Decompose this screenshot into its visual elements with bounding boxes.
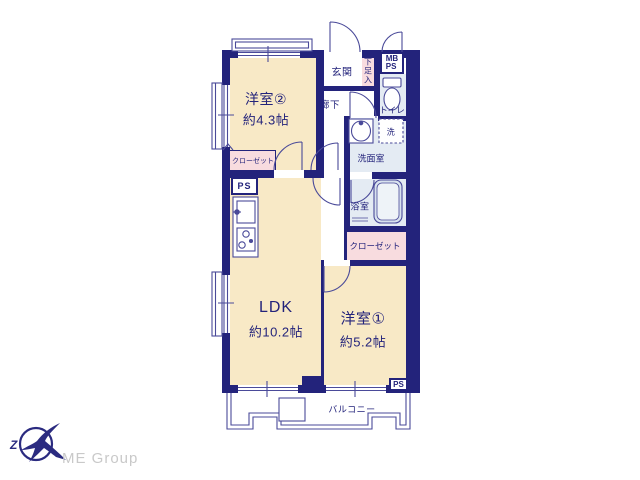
window-sill-left-lower <box>212 272 222 336</box>
room1-size: 約5.2帖 <box>340 332 387 351</box>
balcony-outline <box>227 393 410 429</box>
closet-room1-label: クローゼット <box>349 240 400 252</box>
toilet-label: トイレ <box>379 104 405 116</box>
logo-z-mark: Z <box>10 438 17 452</box>
ldk-name: LDK <box>259 299 293 317</box>
room1-name: 洋室① <box>341 308 386 329</box>
washroom-label: 洗面室 <box>357 152 384 165</box>
window-gap-bottom-room1 <box>326 385 386 393</box>
door-swing-washroom <box>350 92 376 118</box>
window-gap-bottom-ldk <box>238 385 298 393</box>
wall-segment <box>302 376 321 385</box>
window-gap-left-lower <box>222 275 230 333</box>
balcony-label: バルコニー <box>328 403 375 416</box>
ps-left-label: PS <box>237 181 251 191</box>
wall-segment <box>406 50 420 393</box>
window-gap-left-upper <box>222 85 230 147</box>
room2-name: 洋室② <box>245 89 287 109</box>
washer-label: 洗 <box>387 127 396 138</box>
brand-name: ME Group <box>62 450 138 467</box>
room-ldk-floor <box>230 178 321 385</box>
ps-label: PS <box>386 62 397 71</box>
shoebox-label: 下足入 <box>363 58 374 85</box>
wall-segment <box>316 50 324 178</box>
pipe-space-left-box: PS <box>231 177 258 195</box>
ps-right-label: PS <box>393 380 404 389</box>
logo-bird-icon <box>20 423 66 462</box>
meter-box: MB PS <box>380 52 404 74</box>
wall-segment <box>344 226 406 232</box>
wall-segment <box>344 232 347 260</box>
genkan-label: 玄関 <box>332 64 353 79</box>
door-swing-meterbox <box>382 32 402 52</box>
bathroom-label: 浴室 <box>350 200 369 213</box>
balcony-equipment-box <box>279 398 305 421</box>
room2-size: 約4.3帖 <box>243 110 290 129</box>
window-gap-top <box>238 50 300 58</box>
wall-segment <box>304 170 316 178</box>
hallway-label: 廊下 <box>320 97 340 111</box>
pipe-space-right-box: PS <box>389 378 408 391</box>
wall-segment <box>321 260 324 385</box>
wall-segment <box>324 86 378 91</box>
wall-segment <box>350 260 406 266</box>
door-swing-entrance <box>330 22 360 52</box>
wall-segment <box>344 116 350 226</box>
entrance-door-gap <box>324 50 362 58</box>
floorplan-canvas: MB PS PS PS <box>0 0 640 480</box>
window-sill-left-upper <box>212 83 222 149</box>
ldk-size: 約10.2帖 <box>249 322 303 341</box>
wall-segment <box>372 172 406 179</box>
closet-room2-label: クローゼット <box>232 156 274 166</box>
wall-segment <box>378 116 406 121</box>
